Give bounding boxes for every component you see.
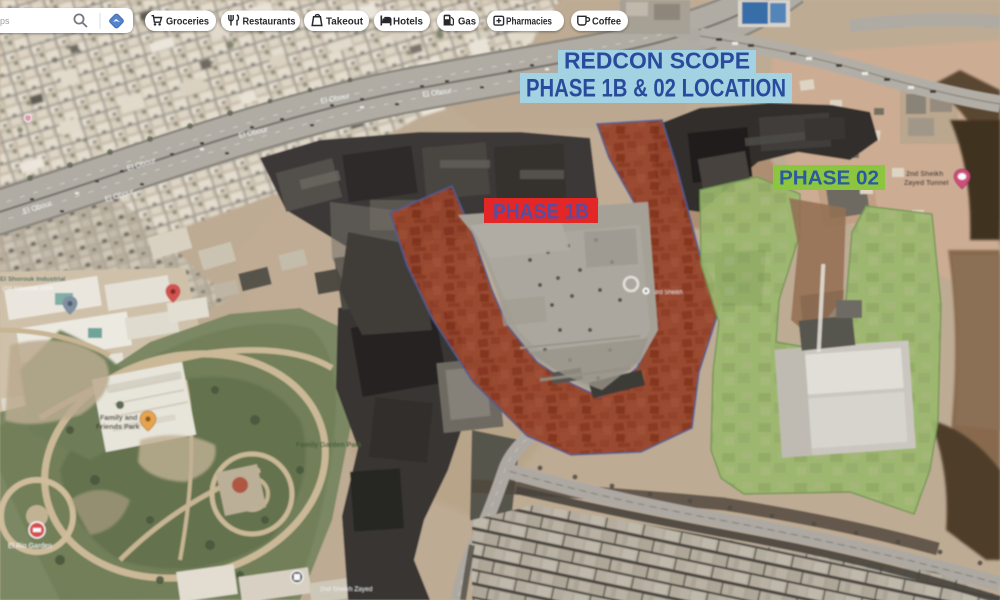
svg-text:REDCON SCOPE: REDCON SCOPE [564,48,750,74]
svg-text:Gas: Gas [458,15,476,27]
svg-text:PHASE 02: PHASE 02 [779,167,879,190]
svg-text:ps: ps [0,16,10,26]
svg-text:Hotels: Hotels [393,15,423,27]
svg-text:PHASE 1B & 02 LOCATION: PHASE 1B & 02 LOCATION [526,75,786,103]
svg-text:Takeout: Takeout [326,15,363,27]
svg-text:Coffee: Coffee [592,15,621,27]
svg-text:Pharmacies: Pharmacies [506,15,552,27]
svg-text:Groceries: Groceries [166,15,209,27]
svg-text:PHASE 1B: PHASE 1B [493,200,589,224]
svg-text:Restaurants: Restaurants [243,15,296,27]
